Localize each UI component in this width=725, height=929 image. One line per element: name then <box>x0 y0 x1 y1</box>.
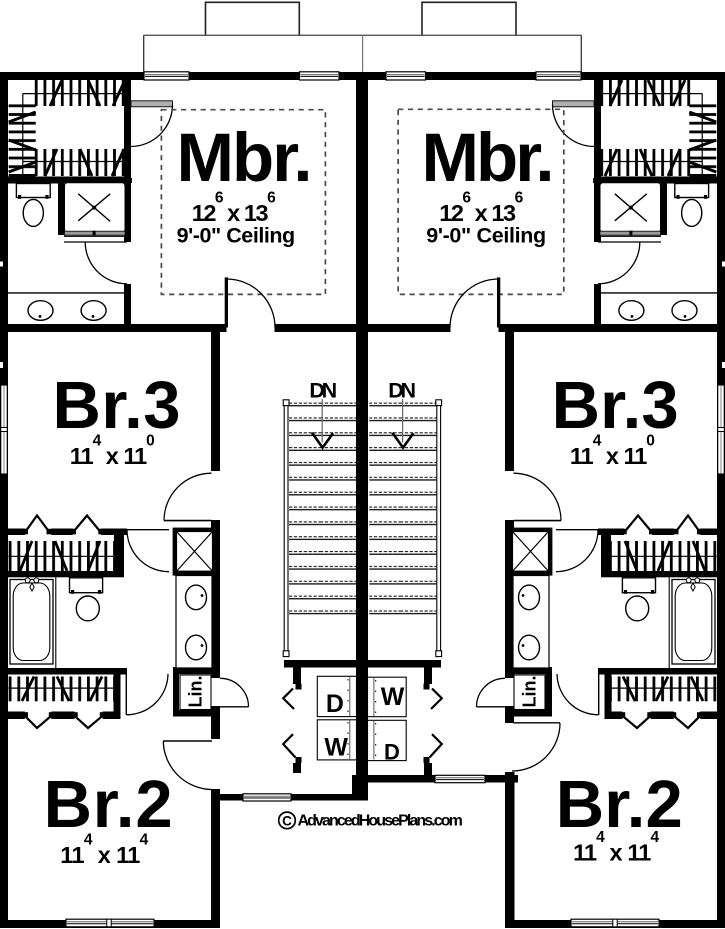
svg-text:DN: DN <box>309 378 337 402</box>
svg-text:Br.3: Br.3 <box>552 368 679 443</box>
svg-text:9'-0" Ceiling: 9'-0" Ceiling <box>177 223 296 247</box>
svg-text:D: D <box>326 690 344 718</box>
svg-text:Br.2: Br.2 <box>44 767 173 842</box>
svg-text:W: W <box>324 734 348 762</box>
svg-text:Lin.: Lin. <box>186 676 206 708</box>
svg-text:C: C <box>282 814 292 829</box>
svg-text:Br.3: Br.3 <box>53 368 181 443</box>
svg-text:Mbr.: Mbr. <box>177 119 313 196</box>
svg-text:AdvancedHousePlans.com: AdvancedHousePlans.com <box>298 812 463 829</box>
svg-text:D: D <box>384 740 400 765</box>
svg-text:W: W <box>381 683 405 711</box>
svg-text:DN: DN <box>388 378 416 402</box>
svg-text:9'-0" Ceiling: 9'-0" Ceiling <box>426 223 546 247</box>
svg-text:Lin.: Lin. <box>520 676 540 708</box>
svg-text:Mbr.: Mbr. <box>422 119 555 196</box>
svg-text:Br.2: Br.2 <box>556 767 683 842</box>
